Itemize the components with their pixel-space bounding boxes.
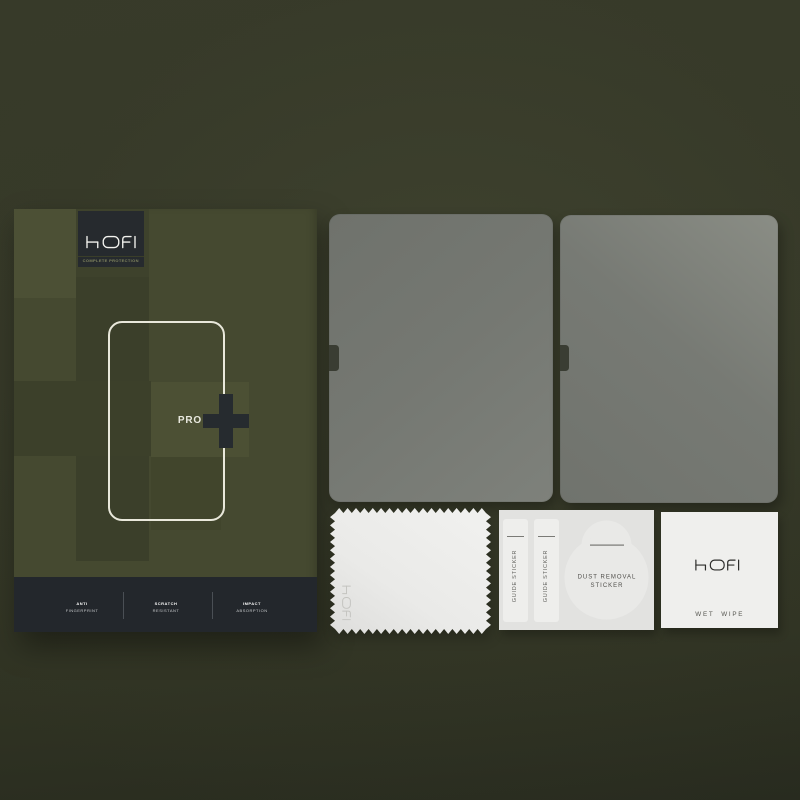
svg-text:DUST REMOVAL: DUST REMOVAL bbox=[577, 575, 636, 581]
svg-text:STICKER: STICKER bbox=[590, 583, 623, 589]
